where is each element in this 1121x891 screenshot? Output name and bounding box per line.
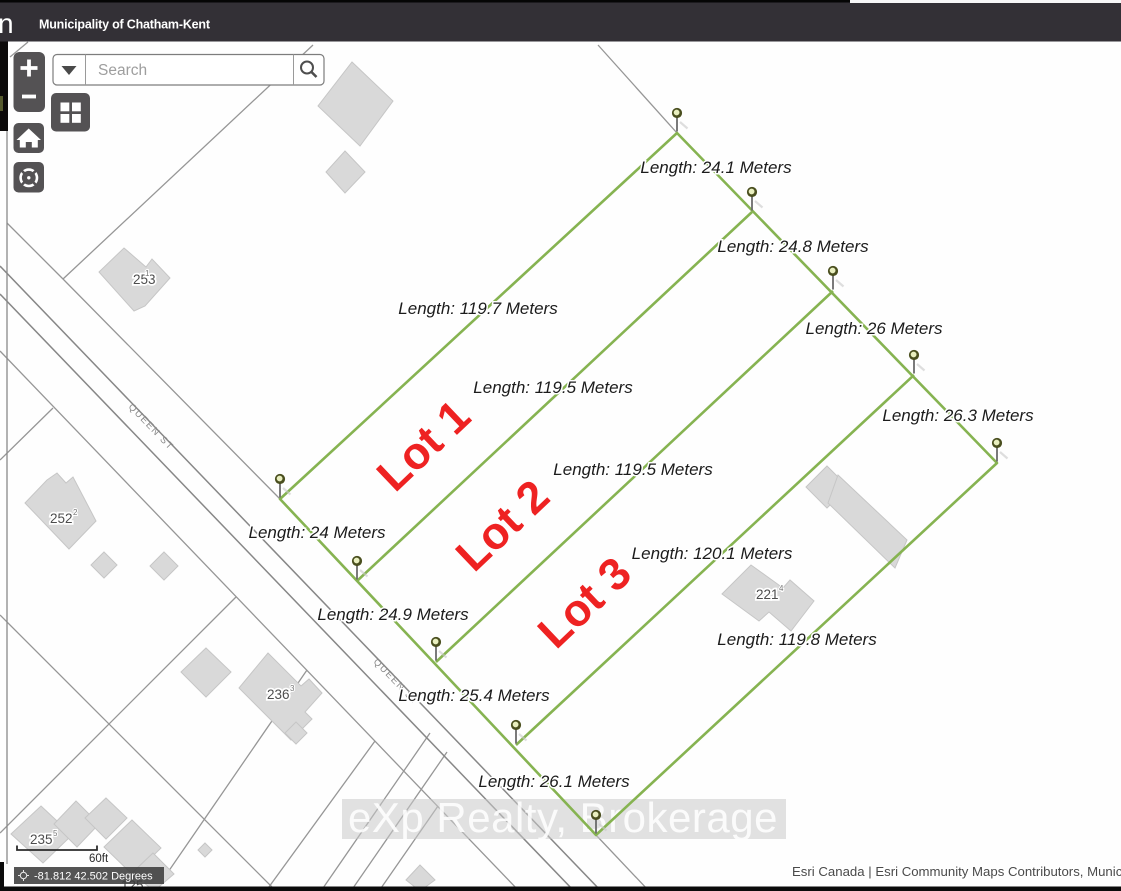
svg-text:236: 236 [267,687,290,702]
svg-text:Length: 26.1 Meters: Length: 26.1 Meters [478,772,630,791]
svg-text:Length: 119.5 Meters: Length: 119.5 Meters [553,460,713,479]
svg-text:Length: 25.4 Meters: Length: 25.4 Meters [398,686,550,705]
svg-text:Search: Search [98,62,147,79]
svg-text:5: 5 [53,829,58,838]
svg-text:4: 4 [779,584,784,593]
svg-text:Length: 24 Meters: Length: 24 Meters [248,523,386,542]
svg-text:-81.812 42.502 Degrees: -81.812 42.502 Degrees [34,871,153,883]
svg-text:Esri Canada | Esri Community M: Esri Canada | Esri Community Maps Contri… [792,864,1121,879]
svg-text:235: 235 [30,832,53,847]
svg-text:Length: 119.5 Meters: Length: 119.5 Meters [473,378,633,397]
svg-text:Length: 119.7 Meters: Length: 119.7 Meters [398,299,558,318]
svg-text:Length: 26.3 Meters: Length: 26.3 Meters [882,406,1034,425]
svg-text:Length: 24.1 Meters: Length: 24.1 Meters [640,158,792,177]
svg-text:3: 3 [290,684,295,693]
svg-text:221: 221 [756,587,779,602]
svg-text:Length: 26 Meters: Length: 26 Meters [805,319,943,338]
svg-text:252: 252 [50,511,73,526]
svg-text:Length: 120.1 Meters: Length: 120.1 Meters [632,544,793,563]
svg-text:Length: 119.8 Meters: Length: 119.8 Meters [717,630,877,649]
svg-text:1: 1 [145,269,150,278]
svg-text:2: 2 [73,508,78,517]
svg-text:60ft: 60ft [89,853,109,865]
svg-text:Length: 24.9 Meters: Length: 24.9 Meters [317,605,469,624]
svg-text:Length: 24.8 Meters: Length: 24.8 Meters [717,237,869,256]
svg-text:Municipality of Chatham-Kent: Municipality of Chatham-Kent [39,18,211,32]
svg-text:n: n [0,8,14,39]
